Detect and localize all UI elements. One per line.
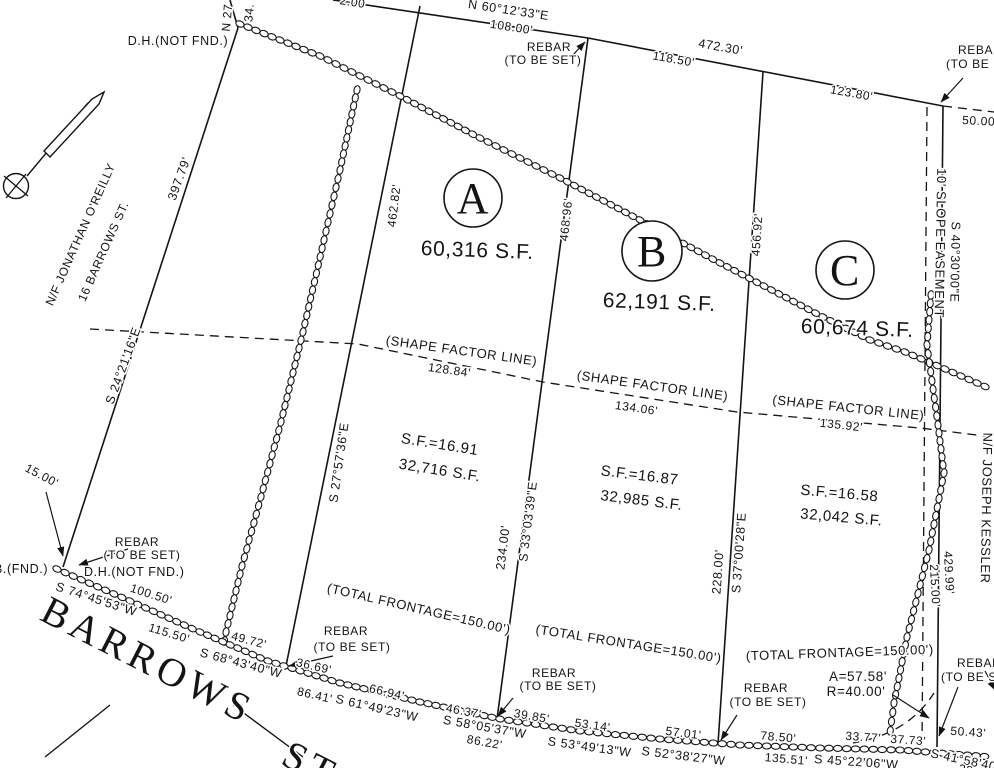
to-be-set-ab-street-label: (TO BE SET)	[519, 679, 596, 693]
stone-wall-link	[305, 302, 313, 312]
stone-wall-link	[912, 597, 920, 607]
stone-wall-link	[816, 745, 825, 751]
stone-wall-link	[257, 492, 265, 502]
stone-wall-link	[266, 459, 274, 469]
stone-wall-link	[935, 428, 942, 437]
rebar-right-label: REBAR	[957, 656, 994, 670]
distance-462-82: 462.82'	[384, 183, 403, 228]
stone-wall-link	[807, 745, 816, 751]
stone-wall-link	[938, 452, 945, 461]
stone-wall-link	[301, 319, 309, 329]
stone-wall-link	[268, 450, 276, 460]
stone-wall-link	[291, 360, 299, 370]
stone-wall-link	[240, 552, 248, 562]
stone-wall-chain-2	[221, 85, 361, 646]
stone-wall-link	[927, 537, 935, 547]
stone-wall-link	[318, 244, 326, 254]
stone-wall-link	[326, 209, 334, 219]
stone-wall-link	[226, 611, 234, 621]
stone-wall-link	[700, 739, 709, 746]
stone-wall-link	[925, 545, 933, 555]
distance-468-96: 468.96'	[557, 197, 575, 241]
distance-2-00-fragment: 2.00	[339, 0, 367, 11]
stone-wall-link	[259, 484, 267, 494]
stone-wall-link	[322, 226, 330, 236]
stone-wall-link	[309, 285, 317, 295]
stone-wall-link	[825, 745, 834, 751]
stone-wall-link	[332, 183, 340, 193]
stone-wall-link	[888, 717, 895, 726]
dh-not-found-top-label: D.H.(NOT FND.)	[128, 34, 229, 48]
stone-wall-link	[334, 174, 342, 184]
distance-456-92: 456.92'	[749, 213, 766, 257]
stone-wall-link	[910, 606, 918, 616]
east-dashed-extension	[943, 106, 994, 112]
stone-wall-link	[753, 743, 762, 749]
rebar-top-label: REBAR	[527, 40, 571, 54]
distance-228-00: 228.00'	[709, 549, 726, 595]
stone-wall-link	[313, 269, 321, 279]
stone-wall-link	[930, 520, 938, 530]
bearing-s45-22-06w: S 45°22'06"W	[814, 752, 899, 768]
stone-wall-link	[727, 741, 736, 748]
stone-wall-link	[937, 485, 945, 495]
distance-429-99: 429.99'	[941, 551, 957, 595]
stone-wall-link	[222, 627, 229, 636]
distance-128-84: 128.84'	[427, 360, 472, 380]
lot-c-frontage-label: (TOTAL FRONTAGE=150.00')	[746, 642, 934, 664]
lot-a-b-line	[497, 38, 588, 719]
lot-a-area-label: 60,316 S.F.	[420, 237, 534, 264]
distance-50-00: 50.00'	[962, 113, 994, 129]
stone-wall-link	[928, 376, 935, 385]
rebar-bottomleft-label: REBAR	[115, 535, 159, 549]
stone-wall-link	[718, 740, 727, 747]
stone-wall-link	[330, 191, 338, 201]
stone-wall-link	[882, 342, 892, 350]
distance-86-41: 86.41'	[296, 684, 334, 706]
curve-radius-label: R=40.00'	[827, 684, 886, 699]
stone-wall-link	[629, 733, 638, 740]
abutter-kessler-label: N/F JOSEPH KESSLER	[978, 432, 994, 583]
stone-wall-link	[316, 252, 324, 262]
stone-wall-link	[320, 235, 328, 245]
stone-wall-link	[311, 277, 319, 287]
stone-wall-link	[270, 442, 278, 452]
lot-b-frontage-label: (TOTAL FRONTAGE=150.00')	[535, 621, 723, 665]
stone-wall-link	[744, 742, 753, 748]
stone-wall-link	[647, 735, 656, 742]
leader-rebar-bc-street	[721, 715, 737, 740]
to-be-set-bottomleft-label: (TO BE SET)	[103, 548, 180, 562]
lot-c-lower-area-label: 32,042 S.F.	[800, 505, 884, 529]
distance-15-00: 15.00'	[23, 461, 61, 490]
stone-wall-link	[281, 401, 289, 411]
stone-wall-link	[930, 385, 937, 394]
stone-wall-link	[914, 589, 922, 599]
stone-wall-link	[898, 657, 906, 667]
boundary-north-b	[588, 38, 943, 106]
distance-33-77: 33.77'	[845, 729, 882, 745]
shape-factor-line-2-label: (SHAPE FACTOR LINE)	[576, 367, 729, 403]
bearing-s40-30-00e: S 40°30'00"E	[947, 222, 962, 303]
stone-wall-link	[261, 475, 269, 485]
stone-wall-link	[638, 734, 647, 741]
stone-wall-link	[923, 340, 930, 349]
rebar-bc-street-label: REBAR	[744, 681, 788, 695]
stone-wall-link	[907, 615, 915, 625]
bearing-s52-38-27w: S 52°38'27"W	[641, 744, 726, 768]
lot-a-lower-area-label: 32,716 S.F.	[398, 456, 482, 486]
dh-not-found-bottom-label: D.H.(NOT FND.)	[84, 565, 185, 579]
stone-wall-link	[887, 747, 896, 753]
distance-123-80: 123.80'	[829, 82, 874, 103]
stone-wall-link	[925, 349, 932, 358]
stone-wall-link	[250, 518, 258, 528]
distance-134-06: 134.06'	[614, 398, 659, 418]
stone-wall-link	[234, 578, 242, 588]
lot-b-sf-label: S.F.=16.87	[600, 462, 680, 488]
stone-wall-link	[903, 632, 911, 642]
shape-factor-line-1-label: (SHAPE FACTOR LINE)	[385, 332, 538, 368]
stone-wall-link	[275, 425, 283, 435]
stone-wall-link	[937, 444, 944, 453]
stone-wall-link	[926, 358, 933, 367]
stone-wall-link	[264, 467, 272, 477]
stone-wall-link	[925, 324, 932, 333]
stone-wall-link	[894, 682, 902, 692]
b-found-label: B.(FND.)	[0, 562, 48, 576]
stone-wall-link	[277, 417, 285, 427]
distance-234-00: 234.00'	[493, 524, 512, 570]
distance-108-00: 108.00'	[489, 17, 534, 37]
lot-c-sf-label: S.F.=16.58	[800, 482, 879, 506]
to-be-set-bc-street-label: (TO BE SET)	[729, 695, 806, 709]
leader-rebar-topright	[941, 78, 963, 102]
lot-b-letter: B	[637, 227, 667, 276]
stone-wall-link	[771, 743, 780, 749]
rebar-ab-street-label: REBAR	[532, 666, 576, 680]
leader-15-00	[46, 492, 63, 556]
stone-wall-link	[238, 561, 246, 571]
stone-wall-link	[931, 394, 938, 403]
stone-wall-link	[236, 569, 244, 579]
lot-b-lower-area-label: 32,985 S.F.	[600, 487, 684, 514]
stone-wall-link	[307, 294, 315, 304]
stone-wall-link	[285, 384, 293, 394]
to-be-set-lota-street-label: (TO BE SET)	[313, 640, 390, 654]
stone-wall-link	[926, 315, 933, 324]
stone-wall-link	[336, 165, 344, 175]
stone-wall-link	[245, 535, 253, 545]
stone-wall-link	[224, 619, 232, 629]
to-be-set-right-label: (TO BE SET)	[941, 670, 994, 684]
stone-wall-link	[878, 746, 887, 752]
stone-wall-link	[273, 434, 281, 444]
stone-wall-link	[980, 382, 990, 391]
stone-wall-link	[549, 723, 558, 730]
stone-wall-link	[935, 494, 943, 504]
stone-wall-link	[842, 746, 851, 752]
stone-wall-link	[890, 698, 897, 707]
stone-wall-link	[228, 602, 236, 612]
stone-wall-link	[255, 501, 263, 511]
lot-a-sf-label: S.F.=16.91	[400, 430, 480, 459]
stone-wall-link	[655, 736, 664, 743]
distance-135-51: 135.51'	[764, 750, 808, 768]
stone-wall-link	[927, 367, 934, 376]
lot-b-area-label: 62,191 S.F.	[602, 289, 716, 316]
stone-wall-link	[929, 528, 937, 538]
stone-wall-link	[923, 554, 931, 564]
stone-wall-link	[297, 335, 305, 345]
stone-wall-link	[833, 745, 842, 751]
stone-wall-link	[247, 527, 255, 537]
street-suffix-label: ST.	[275, 731, 357, 768]
stone-wall-link	[279, 409, 287, 419]
bearing-n27-fragment: N 27	[219, 3, 235, 32]
stone-wall-link	[918, 571, 926, 581]
stone-wall-link	[303, 310, 311, 320]
stone-wall-link	[921, 749, 930, 756]
stone-wall-link	[904, 747, 913, 754]
lot-a-letter: A	[457, 174, 489, 223]
boundary-north-a	[333, 0, 588, 38]
distance-34-fragment: 34.	[241, 3, 257, 23]
stone-wall-link	[798, 744, 807, 750]
stone-wall-link	[869, 746, 878, 752]
north-arrow-cross-2	[6, 174, 26, 198]
curve-arc-length-label: A=57.58'	[829, 669, 887, 684]
bearing-s33-03-39e: S 33°03'39"E	[516, 481, 540, 563]
stone-wall-link	[851, 746, 860, 752]
distance-215-00: 215.00'	[927, 564, 943, 608]
road-edge-left	[45, 705, 110, 757]
stone-wall-link	[936, 436, 943, 445]
stone-wall-link	[762, 743, 771, 749]
stone-wall-link	[243, 544, 251, 554]
rebar-topright-label: REBAR	[958, 43, 994, 57]
stone-wall-link	[939, 460, 946, 469]
distance-118-50: 118.50'	[652, 48, 696, 69]
distance-50-43: 50.43'	[950, 724, 987, 740]
distance-135-92: 135.92'	[819, 416, 863, 434]
stone-wall-link	[940, 468, 948, 478]
stone-wall-link	[934, 420, 941, 429]
slope-easement-label: 10' SLOPE EASEMENT	[932, 168, 950, 318]
stone-wall-link	[933, 411, 940, 420]
stone-wall-link	[932, 403, 939, 412]
bearing-s53-49-13w: S 53°49'13"W	[547, 734, 632, 760]
stone-wall-link	[314, 260, 322, 270]
stone-wall-link	[558, 725, 567, 732]
stone-wall-link	[924, 332, 931, 341]
north-arrow-icon	[4, 92, 105, 199]
stone-wall-link	[905, 623, 913, 633]
stone-wall-link	[299, 327, 307, 337]
north-arrow-head	[44, 92, 104, 157]
lot-c-area-label: 60,674 S.F.	[800, 315, 914, 342]
distance-472-30: 472.30'	[697, 36, 744, 58]
lot-c-letter: C	[830, 246, 860, 295]
stone-wall-link	[287, 376, 295, 386]
stone-wall-link	[895, 747, 904, 754]
stone-wall-link	[889, 708, 896, 717]
stone-wall-link	[293, 352, 301, 362]
survey-plat-page: N 2734.2.00D.H.(NOT FND.)N 60°12'33"E108…	[0, 0, 994, 768]
stone-wall-link	[860, 746, 869, 752]
stone-wall-link	[897, 665, 905, 675]
stone-wall-link	[912, 748, 921, 755]
distance-37-73: 37.73'	[890, 732, 927, 748]
stone-wall-link	[709, 740, 718, 747]
stone-wall-link	[252, 509, 260, 519]
bearing-s27-57-36e: S 27°57'36"E	[326, 421, 351, 503]
rebar-lota-street-label: REBAR	[324, 624, 368, 638]
stone-wall-link	[230, 594, 238, 604]
bearing-s24-21-16e: S 24°21'16"E	[103, 325, 144, 406]
stone-wall-link	[328, 200, 336, 210]
stone-wall-link	[736, 742, 745, 748]
stone-wall-link	[620, 732, 629, 739]
to-be-set-topright-label: (TO BE SET)	[946, 57, 994, 71]
lot-b-c-line	[718, 72, 763, 744]
stone-wall-link	[324, 218, 332, 228]
to-be-set-top-label: (TO BE SET)	[504, 53, 581, 67]
stone-wall-link	[232, 586, 240, 596]
stone-wall-link	[289, 368, 297, 378]
stone-wall-link	[611, 731, 620, 738]
plat-drawing: N 2734.2.00D.H.(NOT FND.)N 60°12'33"E108…	[0, 0, 994, 768]
stone-wall-link	[891, 345, 901, 353]
stone-wall-link	[895, 674, 903, 684]
